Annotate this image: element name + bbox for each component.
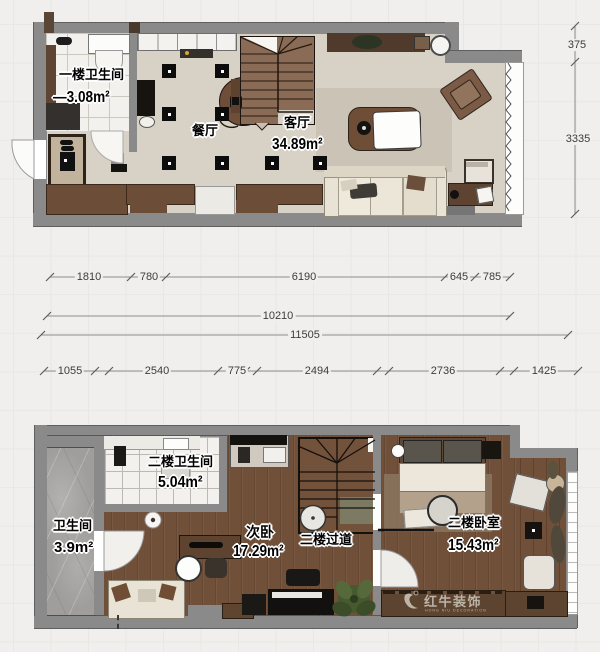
svg-text:红牛装饰: 红牛装饰 bbox=[424, 594, 482, 609]
svg-text:HONG NIU DECORATION: HONG NIU DECORATION bbox=[425, 609, 487, 613]
